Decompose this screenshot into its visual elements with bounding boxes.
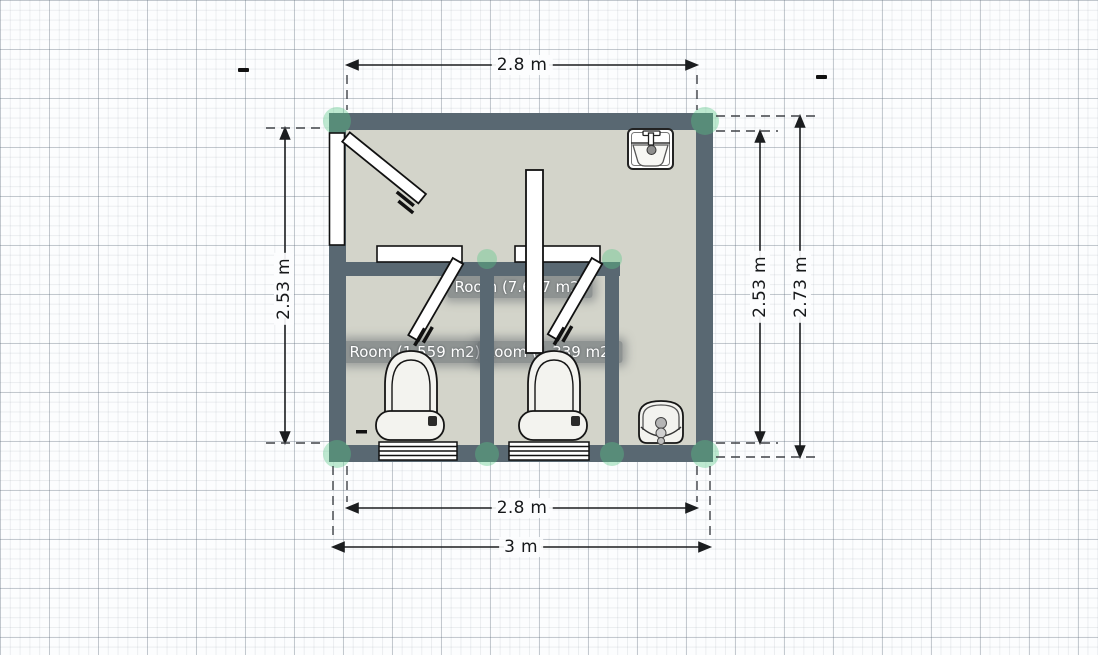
dim-label-bottom-outer-width[interactable]: 3 m: [499, 537, 543, 557]
dim-label-top-width[interactable]: 2.8 m: [492, 55, 553, 75]
dim-label-right-outer-height[interactable]: 2.73 m: [791, 251, 811, 323]
floorplan-canvas: Room (7.627 m2) Room (1.559 m2) Room (1.…: [0, 0, 1098, 655]
dimension-label-layer: 2.8 m 2.53 m 2.53 m 2.73 m 2.8 m 3 m: [0, 0, 1098, 655]
dim-label-left-height[interactable]: 2.53 m: [274, 253, 294, 325]
dim-label-bottom-inner-width[interactable]: 2.8 m: [492, 498, 553, 518]
dim-label-right-inner-height[interactable]: 2.53 m: [750, 251, 770, 323]
